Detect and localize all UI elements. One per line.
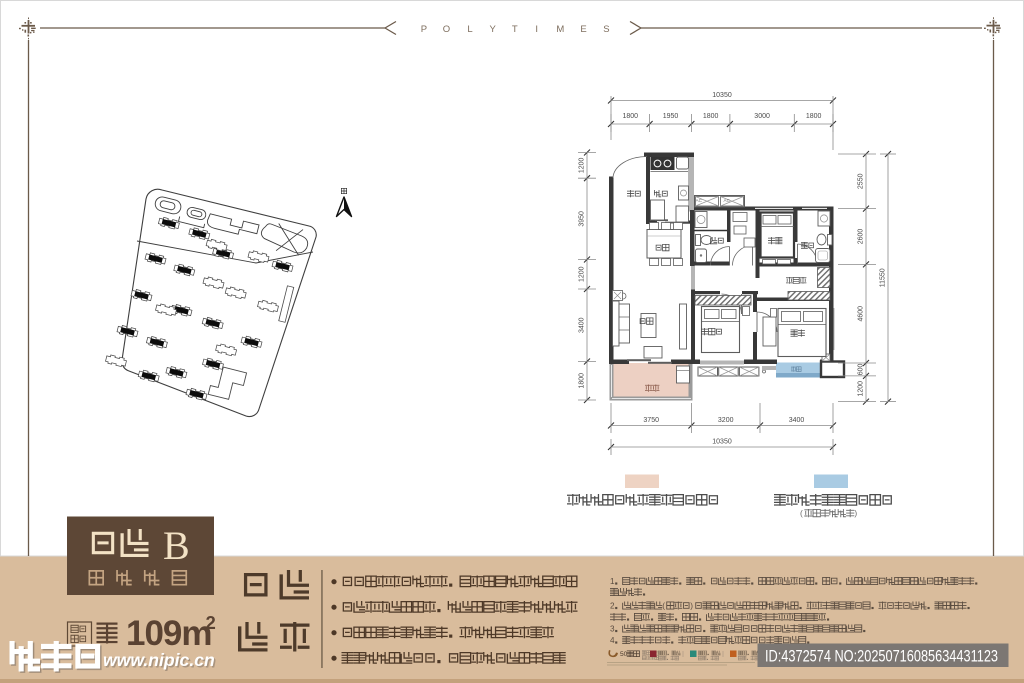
svg-text:10350: 10350 [712,92,732,99]
svg-text:AC: AC [696,198,703,203]
svg-text:1800: 1800 [703,113,719,120]
svg-text:B: B [163,523,190,568]
svg-text:50: 50 [620,651,628,658]
svg-text:3400: 3400 [789,417,805,424]
svg-text:ID:4372574 NO:2025071608563443: ID:4372574 NO:20250716085634431123 [765,647,998,666]
svg-text:1800: 1800 [579,373,586,389]
svg-text:3: 3 [610,624,615,633]
svg-text:3200: 3200 [718,417,734,424]
svg-text:E: E [580,24,586,35]
svg-text:O: O [443,24,450,35]
svg-text:I: I [535,24,538,35]
svg-text:3750: 3750 [643,417,659,424]
svg-text:2550: 2550 [858,173,865,189]
svg-text:S: S [603,24,609,35]
svg-text:4600: 4600 [858,306,865,322]
svg-text:1800: 1800 [806,113,822,120]
svg-text:(: ( [662,601,665,610]
svg-text:Y: Y [490,24,497,35]
svg-text:600: 600 [858,364,865,376]
svg-text:11550: 11550 [880,268,887,287]
svg-text:P: P [421,24,427,35]
svg-text:(: ( [800,508,803,518]
svg-text:L: L [467,24,472,35]
svg-text:10350: 10350 [712,439,732,446]
svg-text:1800: 1800 [623,113,639,120]
svg-text:): ) [690,601,693,610]
svg-text:3400: 3400 [579,317,586,333]
svg-text:T: T [512,24,518,35]
svg-text:1: 1 [610,577,615,586]
svg-text:1200: 1200 [579,157,586,173]
svg-text:2600: 2600 [858,229,865,245]
svg-text:3950: 3950 [579,211,586,227]
svg-text:1950: 1950 [663,113,679,120]
svg-text:4: 4 [610,636,615,645]
svg-text:): ) [854,508,857,518]
svg-text:1200: 1200 [579,266,586,282]
svg-text:1200: 1200 [858,381,865,397]
svg-text:109m: 109m [126,614,212,653]
svg-text:3000: 3000 [754,113,770,120]
svg-text:AC: AC [724,198,731,203]
svg-text:2: 2 [610,601,615,610]
svg-text:M: M [556,24,564,35]
svg-text:2: 2 [206,612,216,633]
svg-text:www.nipic.cn: www.nipic.cn [103,650,215,670]
